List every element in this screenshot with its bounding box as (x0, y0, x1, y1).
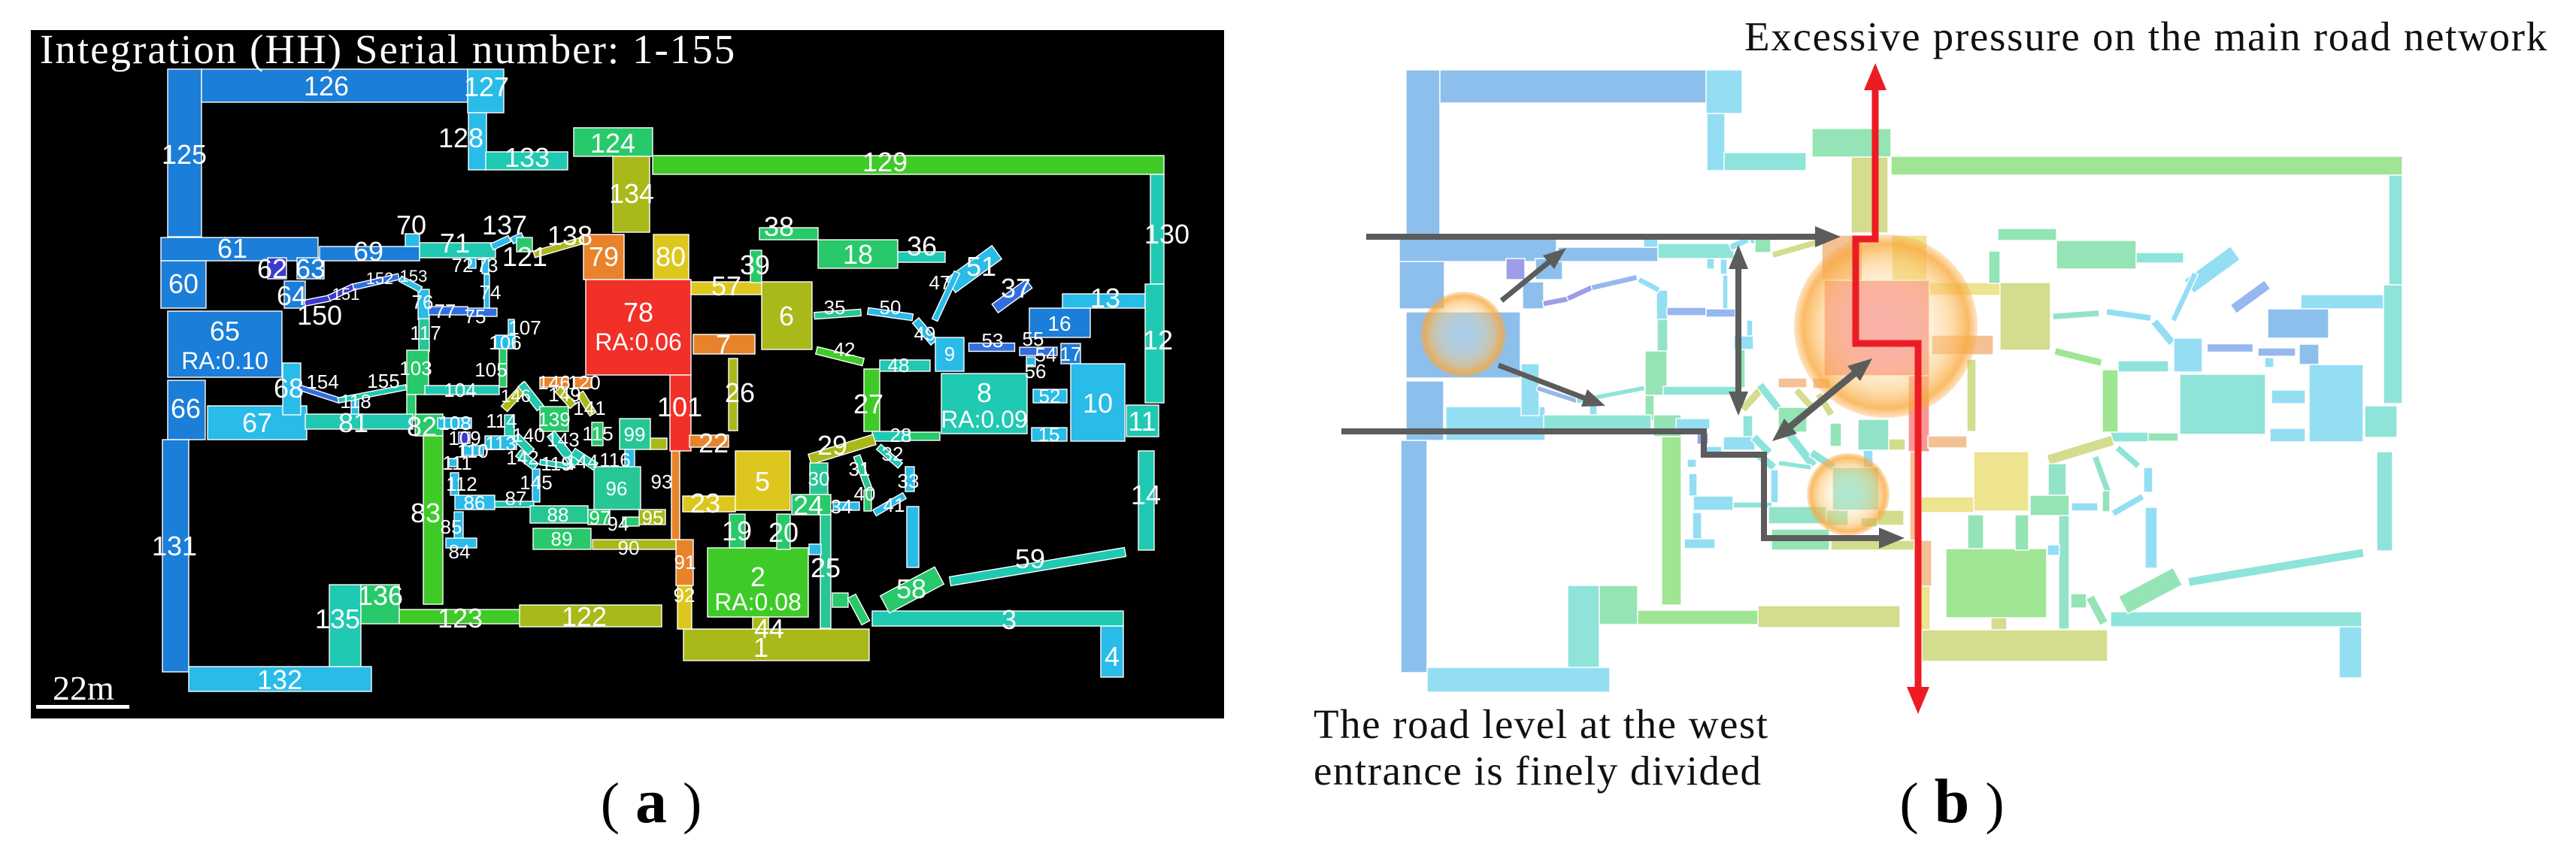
svg-text:65: 65 (210, 316, 240, 346)
svg-text:19: 19 (722, 516, 752, 546)
svg-text:15: 15 (1038, 423, 1060, 446)
svg-text:92: 92 (674, 584, 696, 606)
svg-text:146: 146 (501, 386, 531, 407)
svg-text:82: 82 (407, 411, 437, 442)
svg-text:47: 47 (929, 271, 951, 294)
svg-text:11: 11 (1128, 406, 1156, 437)
svg-text:10: 10 (1083, 388, 1113, 419)
svg-text:41: 41 (883, 494, 905, 516)
svg-text:32: 32 (882, 443, 904, 465)
svg-text:80: 80 (656, 241, 686, 272)
svg-text:26: 26 (725, 377, 755, 408)
svg-text:128: 128 (438, 123, 483, 153)
svg-text:99: 99 (624, 423, 646, 446)
svg-text:151: 151 (332, 285, 360, 304)
svg-text:37: 37 (1001, 273, 1031, 304)
svg-text:14: 14 (1131, 479, 1161, 510)
svg-text:12: 12 (1143, 325, 1173, 355)
svg-text:6: 6 (779, 301, 794, 331)
svg-text:18: 18 (843, 239, 873, 270)
svg-text:62: 62 (257, 253, 287, 284)
svg-text:( a ): ( a ) (601, 767, 702, 836)
svg-text:RA:0.06: RA:0.06 (595, 328, 682, 355)
svg-text:116: 116 (599, 449, 630, 471)
svg-text:101: 101 (657, 392, 702, 422)
svg-text:91: 91 (674, 551, 696, 573)
svg-text:50: 50 (880, 296, 902, 319)
svg-text:95: 95 (642, 507, 664, 529)
svg-text:117: 117 (410, 322, 441, 344)
svg-text:7: 7 (716, 329, 731, 360)
svg-text:35: 35 (824, 296, 846, 319)
svg-text:34: 34 (831, 495, 853, 518)
svg-text:23: 23 (690, 488, 720, 519)
svg-text:2: 2 (750, 561, 765, 592)
svg-text:( b ): ( b ) (1899, 767, 2004, 836)
svg-text:141: 141 (573, 397, 605, 419)
svg-text:57: 57 (711, 271, 741, 301)
svg-text:89: 89 (551, 528, 573, 550)
svg-text:72: 72 (452, 254, 474, 277)
svg-text:104: 104 (444, 379, 476, 401)
svg-text:96: 96 (606, 477, 628, 500)
svg-text:123: 123 (438, 603, 483, 634)
svg-text:4: 4 (1105, 641, 1120, 672)
svg-text:132: 132 (257, 664, 302, 695)
svg-text:49: 49 (914, 322, 936, 345)
svg-text:115: 115 (582, 422, 613, 445)
svg-text:39: 39 (740, 250, 770, 280)
svg-text:74: 74 (480, 281, 502, 304)
svg-text:29: 29 (817, 430, 847, 461)
svg-text:83: 83 (411, 498, 441, 528)
svg-text:93: 93 (651, 470, 673, 493)
svg-text:130: 130 (1144, 219, 1190, 250)
svg-text:8: 8 (977, 377, 992, 408)
svg-text:84: 84 (449, 540, 471, 563)
svg-text:22m: 22m (53, 669, 114, 707)
svg-text:107: 107 (508, 316, 541, 339)
svg-text:139: 139 (538, 408, 570, 431)
svg-text:129: 129 (862, 147, 908, 177)
svg-text:133: 133 (505, 142, 550, 173)
svg-text:81: 81 (338, 407, 368, 438)
svg-text:131: 131 (152, 531, 197, 561)
svg-text:78: 78 (623, 297, 653, 328)
svg-text:RA:0.08: RA:0.08 (714, 588, 802, 616)
svg-text:20: 20 (768, 517, 799, 548)
svg-text:33: 33 (898, 470, 920, 492)
svg-text:5: 5 (755, 466, 770, 497)
svg-text:109: 109 (448, 427, 480, 449)
svg-text:36: 36 (907, 231, 937, 262)
svg-text:58: 58 (896, 573, 926, 604)
svg-text:142: 142 (506, 446, 538, 469)
svg-text:119: 119 (541, 452, 571, 475)
svg-text:63: 63 (295, 253, 326, 284)
svg-text:111: 111 (442, 452, 472, 474)
svg-text:154: 154 (306, 371, 338, 393)
svg-text:138: 138 (547, 220, 592, 251)
svg-text:153: 153 (400, 267, 428, 286)
svg-text:3: 3 (1002, 604, 1017, 635)
svg-text:56: 56 (1025, 360, 1047, 383)
svg-text:16: 16 (1047, 312, 1071, 335)
svg-text:27: 27 (853, 389, 883, 419)
svg-text:42: 42 (834, 338, 856, 361)
svg-text:67: 67 (242, 407, 272, 438)
svg-text:112: 112 (446, 473, 477, 495)
svg-text:9: 9 (944, 343, 955, 365)
svg-text:24: 24 (793, 490, 823, 521)
svg-text:60: 60 (168, 268, 199, 299)
svg-text:79: 79 (589, 241, 619, 272)
svg-text:70: 70 (396, 210, 426, 240)
svg-text:103: 103 (399, 357, 432, 380)
svg-text:143: 143 (547, 428, 579, 451)
svg-text:152: 152 (366, 269, 394, 288)
svg-text:77: 77 (435, 300, 456, 322)
svg-text:30: 30 (808, 467, 830, 490)
svg-text:135: 135 (315, 603, 360, 634)
svg-text:68: 68 (274, 373, 304, 404)
svg-text:RA:0.10: RA:0.10 (181, 347, 268, 374)
svg-text:22: 22 (699, 428, 729, 458)
svg-text:Integration (HH) Serial number: Integration (HH) Serial number: 1-155 (40, 26, 736, 72)
svg-text:25: 25 (811, 552, 841, 583)
svg-text:73: 73 (477, 254, 499, 277)
svg-text:entrance is finely divided: entrance is finely divided (1314, 748, 1762, 794)
svg-text:150: 150 (297, 300, 342, 331)
svg-text:122: 122 (562, 601, 607, 632)
svg-text:52: 52 (1039, 385, 1061, 407)
svg-text:124: 124 (590, 128, 635, 159)
svg-text:76: 76 (412, 291, 434, 313)
svg-text:RA:0.09: RA:0.09 (941, 406, 1028, 433)
svg-text:69: 69 (353, 236, 383, 267)
svg-text:126: 126 (304, 71, 349, 101)
svg-text:51: 51 (966, 251, 996, 282)
svg-text:31: 31 (849, 458, 871, 480)
svg-text:53: 53 (982, 329, 1004, 352)
svg-text:114: 114 (486, 410, 517, 432)
svg-text:61: 61 (217, 233, 247, 264)
svg-text:90: 90 (618, 537, 640, 559)
svg-text:94: 94 (608, 513, 629, 535)
svg-text:66: 66 (171, 393, 201, 424)
svg-text:125: 125 (162, 139, 207, 170)
svg-text:88: 88 (547, 504, 569, 526)
svg-text:40: 40 (854, 482, 876, 505)
svg-text:Excessive pressure on the main: Excessive pressure on the main road netw… (1744, 14, 2548, 59)
svg-text:137: 137 (482, 210, 527, 240)
svg-text:136: 136 (358, 580, 403, 611)
svg-text:127: 127 (464, 71, 509, 102)
svg-text:38: 38 (764, 211, 794, 242)
svg-text:134: 134 (609, 178, 654, 209)
svg-text:13: 13 (1090, 283, 1120, 313)
svg-text:105: 105 (474, 358, 507, 381)
svg-text:59: 59 (1015, 543, 1045, 574)
svg-text:155: 155 (367, 370, 399, 392)
svg-text:48: 48 (888, 354, 910, 377)
svg-text:17: 17 (1060, 343, 1082, 365)
svg-text:The road level at the west: The road level at the west (1314, 701, 1769, 747)
svg-text:1: 1 (753, 632, 768, 663)
svg-text:121: 121 (502, 241, 547, 272)
svg-text:75: 75 (465, 305, 486, 328)
svg-text:85: 85 (441, 516, 462, 538)
